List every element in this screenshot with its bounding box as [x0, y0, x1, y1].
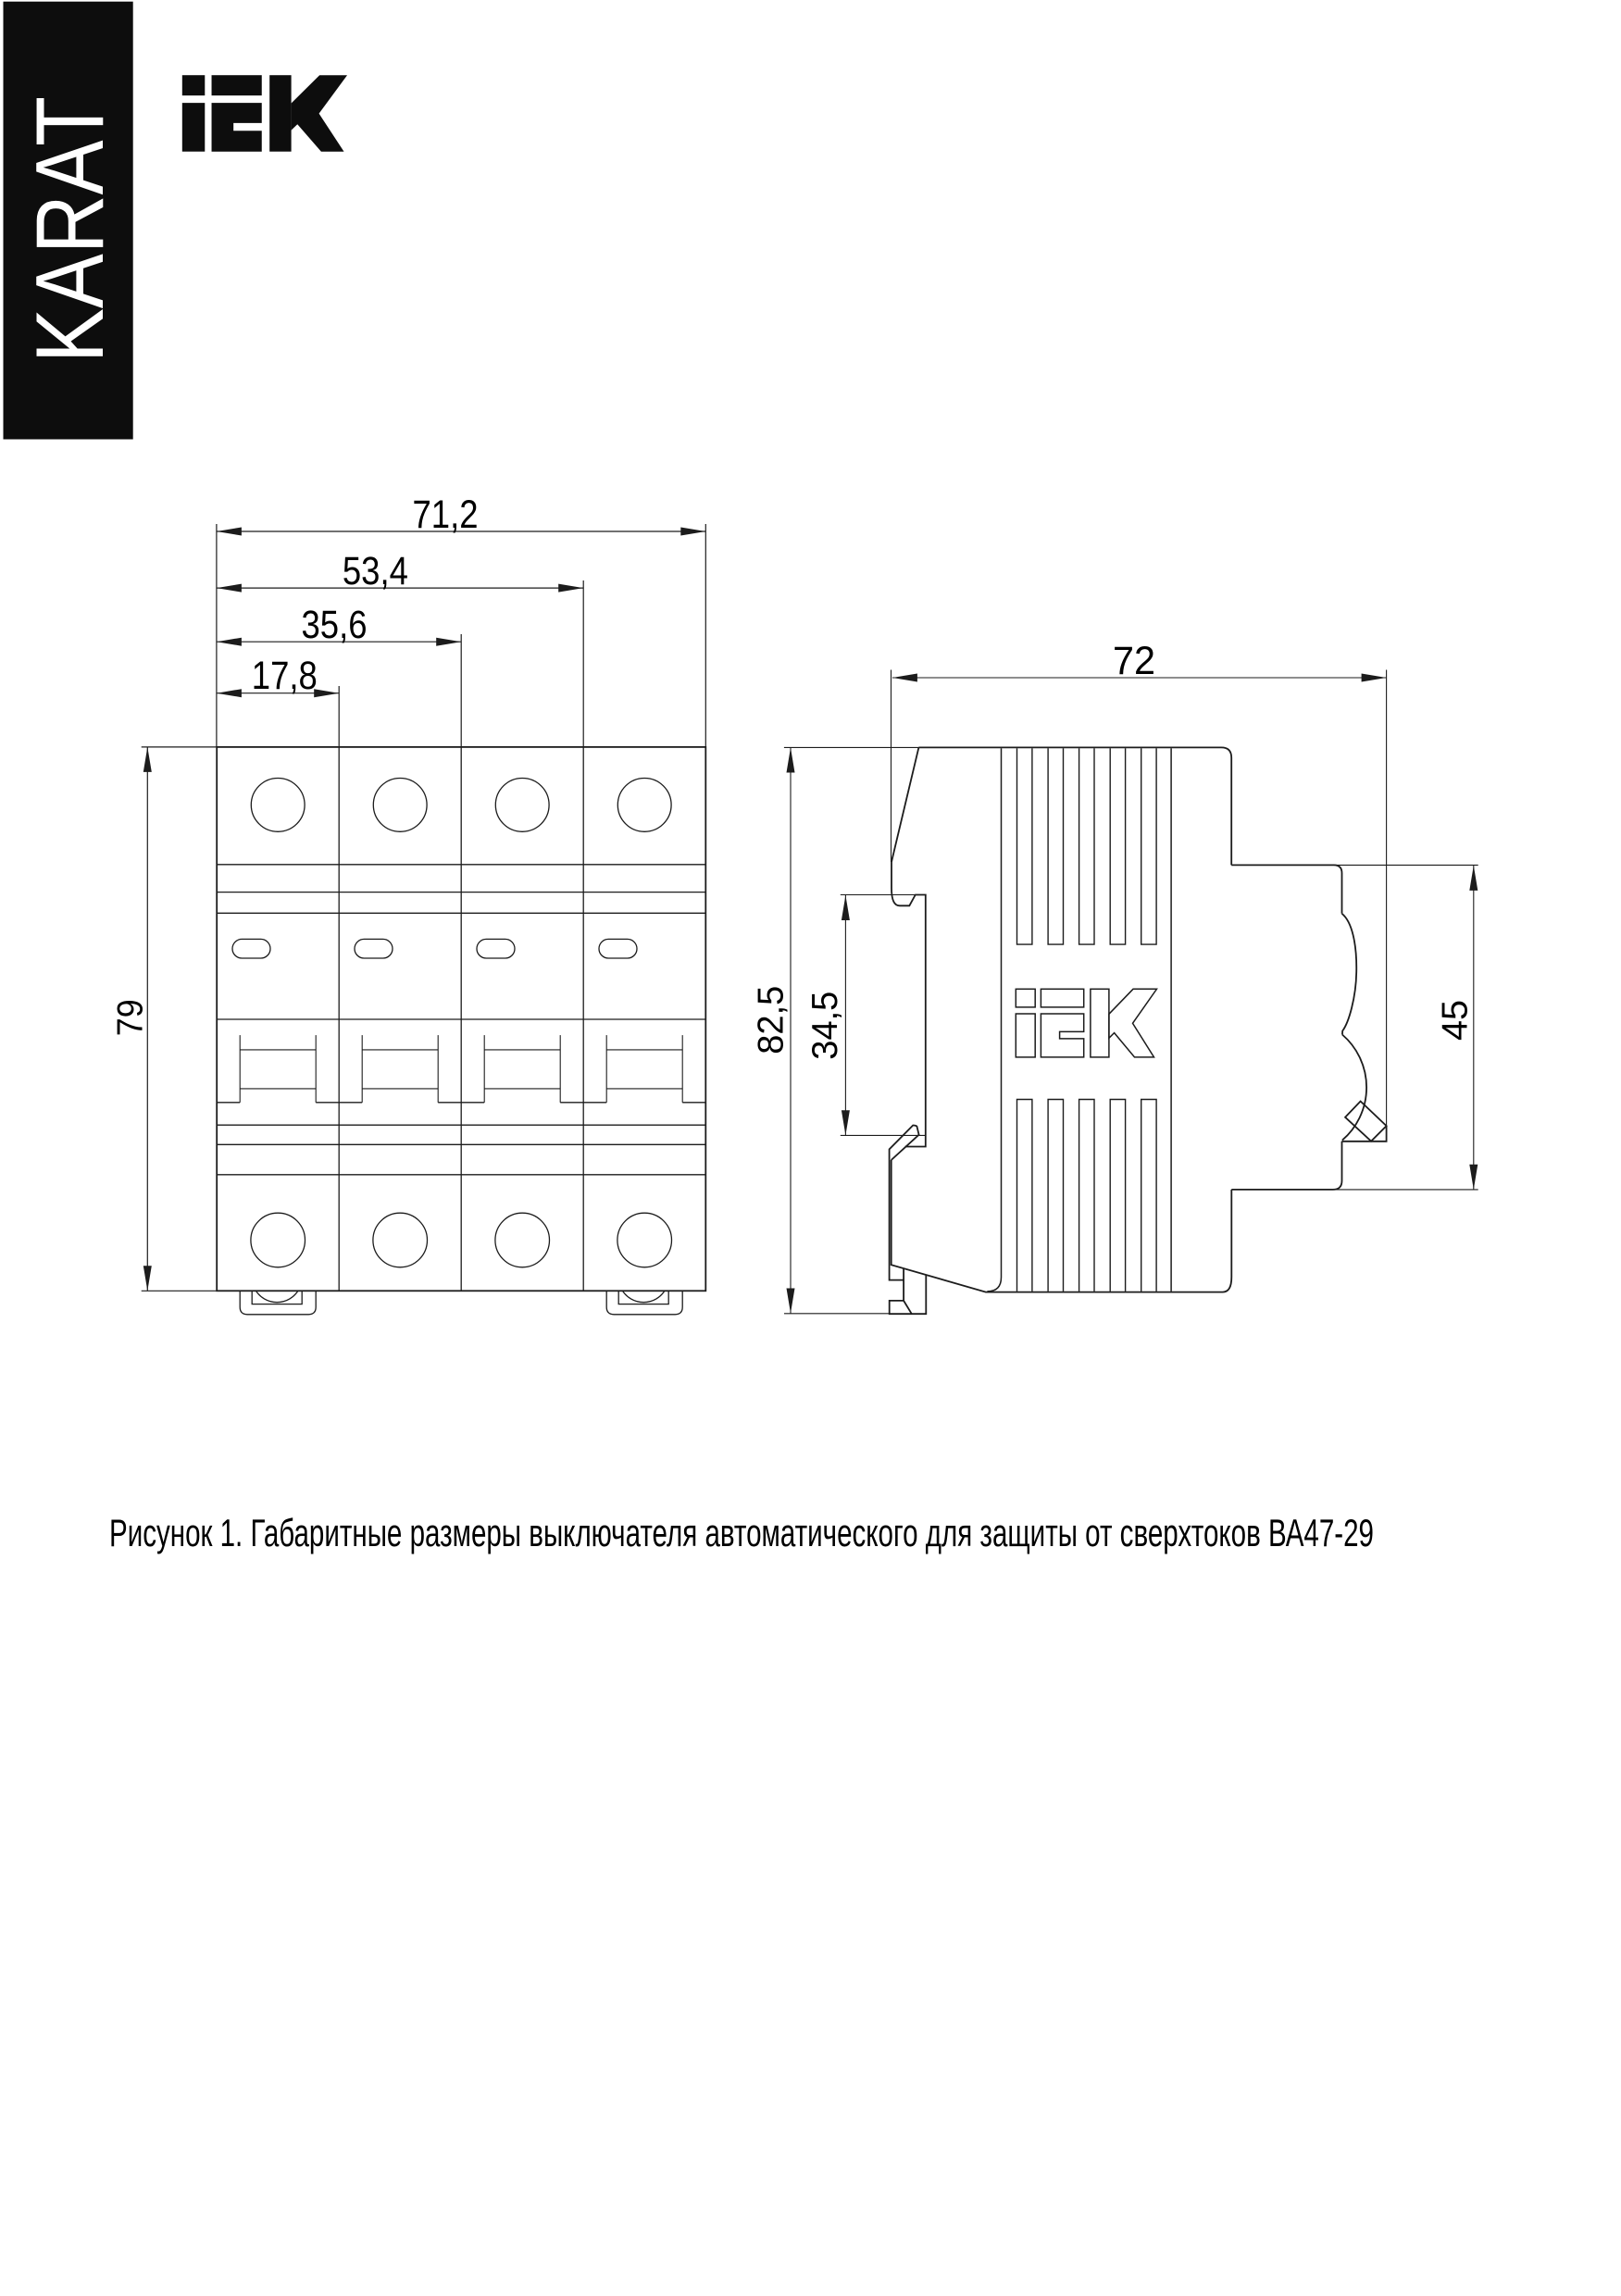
- svg-text:71,2: 71,2: [413, 493, 479, 537]
- svg-text:45: 45: [1435, 1000, 1475, 1041]
- svg-text:82,5: 82,5: [751, 986, 791, 1054]
- svg-text:35,6: 35,6: [302, 603, 368, 647]
- svg-text:72: 72: [1113, 639, 1155, 683]
- svg-text:79: 79: [110, 999, 150, 1036]
- svg-text:Рисунок 1. Габаритные размеры: Рисунок 1. Габаритные размеры выключател…: [109, 1511, 1374, 1554]
- svg-text:KARAT: KARAT: [17, 96, 124, 363]
- svg-text:34,5: 34,5: [805, 992, 845, 1060]
- svg-text:17,8: 17,8: [252, 654, 318, 698]
- svg-text:53,4: 53,4: [343, 549, 408, 593]
